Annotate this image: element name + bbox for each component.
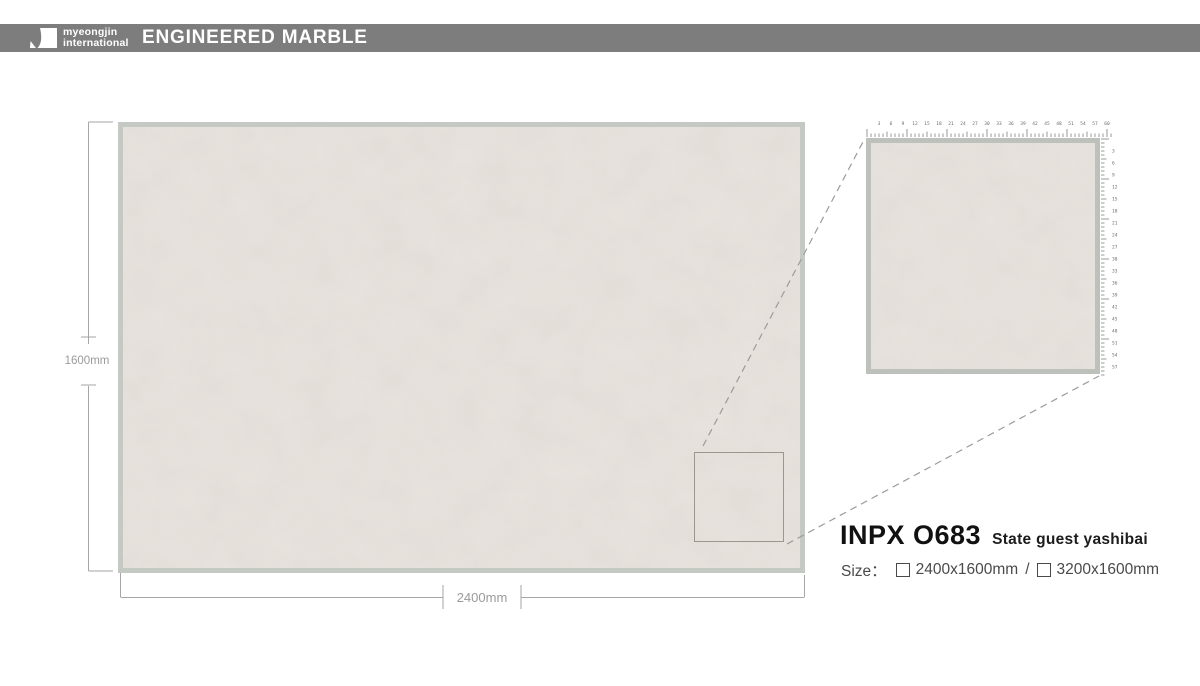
- svg-text:48: 48: [1056, 121, 1062, 127]
- size-checkbox-3200[interactable]: [1037, 563, 1051, 577]
- height-dimension-label: 1600mm: [57, 355, 117, 367]
- svg-text:6: 6: [890, 121, 893, 127]
- svg-text:48: 48: [1112, 329, 1118, 335]
- top-ruler-icon: 3691215182124273033363942454851545760: [866, 117, 1112, 138]
- brand-name: myeongjin international: [63, 27, 129, 49]
- svg-text:39: 39: [1112, 293, 1118, 299]
- svg-text:21: 21: [948, 121, 954, 127]
- svg-text:39: 39: [1020, 121, 1026, 127]
- logo-main-shape: [38, 28, 58, 48]
- size-row: Size： 2400x1600mm / 3200x1600mm: [841, 559, 1159, 581]
- svg-text:12: 12: [912, 121, 918, 127]
- svg-text:15: 15: [924, 121, 930, 127]
- product-code: INPX O683: [840, 520, 981, 551]
- svg-text:45: 45: [1044, 121, 1050, 127]
- page-title: ENGINEERED MARBLE: [142, 24, 368, 52]
- page: myeongjin international ENGINEERED MARBL…: [0, 0, 1200, 686]
- svg-text:51: 51: [1068, 121, 1074, 127]
- texture-rect: [871, 143, 1095, 369]
- svg-text:30: 30: [1112, 257, 1118, 263]
- svg-text:54: 54: [1080, 121, 1086, 127]
- svg-text:21: 21: [1112, 221, 1118, 227]
- svg-text:6: 6: [1112, 161, 1115, 167]
- detail-view-panel: [866, 138, 1100, 374]
- svg-text:3: 3: [878, 121, 881, 127]
- height-dimension-line: [81, 122, 113, 571]
- svg-text:9: 9: [902, 121, 905, 127]
- svg-text:3: 3: [1112, 149, 1115, 155]
- svg-text:30: 30: [984, 121, 990, 127]
- logo-corner-triangle: [30, 41, 36, 48]
- svg-text:27: 27: [972, 121, 978, 127]
- svg-text:45: 45: [1112, 317, 1118, 323]
- width-dimension-label: 2400mm: [443, 590, 521, 605]
- svg-text:18: 18: [1112, 209, 1118, 215]
- product-name: State guest yashibai: [992, 531, 1148, 549]
- svg-text:57: 57: [1092, 121, 1098, 127]
- size-label: Size：: [841, 559, 887, 581]
- svg-text:27: 27: [1112, 245, 1118, 251]
- svg-text:60: 60: [1104, 121, 1110, 127]
- size-option-label-3200: 3200x1600mm: [1057, 561, 1160, 579]
- svg-text:24: 24: [1112, 233, 1118, 239]
- svg-text:42: 42: [1032, 121, 1038, 127]
- right-ruler-icon: 36912151821242730333639424548515457: [1101, 138, 1125, 376]
- header-bar: myeongjin international ENGINEERED MARBL…: [0, 24, 1200, 52]
- svg-text:12: 12: [1112, 185, 1118, 191]
- svg-text:15: 15: [1112, 197, 1118, 203]
- leader-line-bottom: [787, 376, 1099, 544]
- brand-logo-icon: [30, 28, 57, 48]
- product-header: INPX O683 State guest yashibai: [840, 520, 1148, 551]
- svg-text:54: 54: [1112, 353, 1118, 359]
- svg-text:24: 24: [960, 121, 966, 127]
- svg-text:18: 18: [936, 121, 942, 127]
- size-checkbox-2400[interactable]: [896, 563, 910, 577]
- detail-marble-texture: [871, 143, 1095, 369]
- svg-text:9: 9: [1112, 173, 1115, 179]
- size-option-label-2400: 2400x1600mm: [916, 561, 1019, 579]
- size-separator: /: [1025, 561, 1029, 579]
- svg-text:51: 51: [1112, 341, 1118, 347]
- brand-line2: international: [63, 38, 129, 49]
- svg-text:36: 36: [1008, 121, 1014, 127]
- svg-text:42: 42: [1112, 305, 1118, 311]
- detail-selection-box: [694, 452, 784, 542]
- svg-text:33: 33: [1112, 269, 1118, 275]
- svg-text:33: 33: [996, 121, 1002, 127]
- svg-text:36: 36: [1112, 281, 1118, 287]
- svg-text:57: 57: [1112, 365, 1118, 371]
